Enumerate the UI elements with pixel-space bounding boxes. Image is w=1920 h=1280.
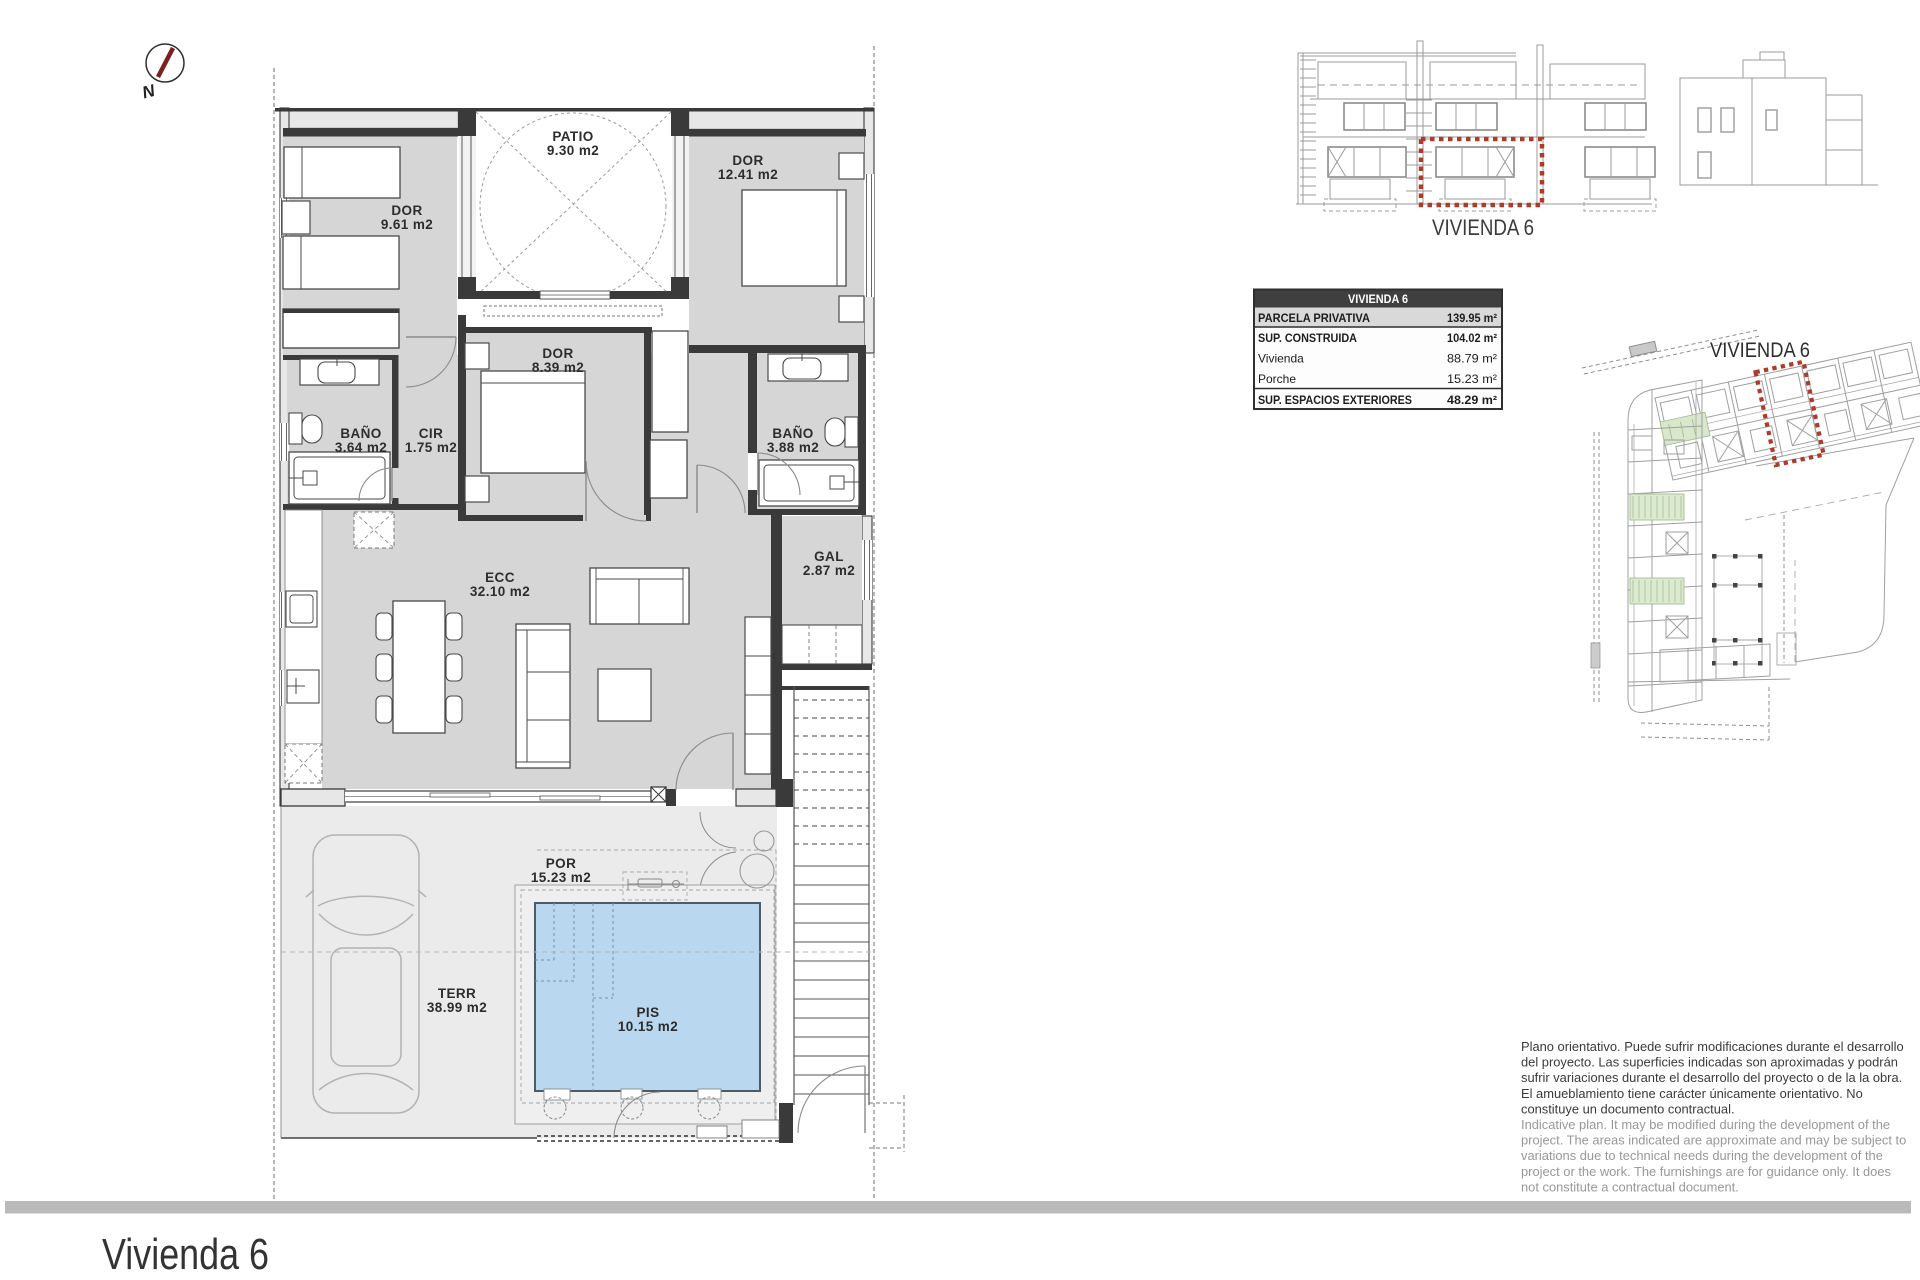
svg-text:ECC: ECC: [485, 570, 515, 585]
svg-text:9.61 m2: 9.61 m2: [381, 217, 433, 232]
svg-text:12.41 m2: 12.41 m2: [718, 167, 778, 182]
svg-text:El amueblamiento tiene carácte: El amueblamiento tiene carácter únicamen…: [1521, 1086, 1863, 1101]
svg-text:Porche: Porche: [1258, 372, 1296, 386]
svg-text:3.88 m2: 3.88 m2: [767, 440, 819, 455]
svg-text:3.64 m2: 3.64 m2: [335, 440, 387, 455]
svg-text:VIVIENDA 6: VIVIENDA 6: [1710, 339, 1810, 362]
svg-text:38.99 m2: 38.99 m2: [427, 1000, 487, 1015]
svg-text:VIVIENDA 6: VIVIENDA 6: [1432, 215, 1534, 240]
svg-text:constituye un documento contra: constituye un documento contractual.: [1521, 1101, 1735, 1116]
svg-text:2.87 m2: 2.87 m2: [803, 563, 855, 578]
svg-text:139.95 m²: 139.95 m²: [1447, 311, 1497, 325]
svg-text:PATIO: PATIO: [552, 129, 593, 144]
svg-text:10.15 m2: 10.15 m2: [618, 1019, 678, 1034]
svg-text:SUP. ESPACIOS EXTERIORES: SUP. ESPACIOS EXTERIORES: [1258, 393, 1412, 407]
svg-text:VIVIENDA 6: VIVIENDA 6: [1348, 292, 1408, 306]
svg-text:variations due to technical ne: variations due to technical needs during…: [1521, 1148, 1883, 1163]
svg-text:CIR: CIR: [419, 426, 443, 441]
svg-text:DOR: DOR: [542, 346, 573, 361]
svg-text:32.10 m2: 32.10 m2: [470, 584, 530, 599]
svg-text:TERR: TERR: [438, 986, 476, 1001]
svg-text:PIS: PIS: [637, 1005, 660, 1020]
svg-text:15.23 m2: 15.23 m2: [531, 870, 591, 885]
svg-text:Plano orientativo. Puede sufri: Plano orientativo. Puede sufrir modifica…: [1521, 1039, 1904, 1054]
svg-text:Indicative plan. It may be mod: Indicative plan. It may be modified duri…: [1521, 1117, 1890, 1132]
svg-text:104.02 m²: 104.02 m²: [1447, 331, 1497, 345]
svg-text:sufrir variaciones durante el: sufrir variaciones durante el desarrollo…: [1521, 1070, 1902, 1085]
svg-text:15.23 m²: 15.23 m²: [1447, 372, 1497, 386]
svg-text:DOR: DOR: [732, 153, 763, 168]
svg-text:PARCELA PRIVATIVA: PARCELA PRIVATIVA: [1258, 311, 1370, 325]
svg-text:BAÑO: BAÑO: [340, 426, 381, 441]
svg-text:1.75 m2: 1.75 m2: [405, 440, 457, 455]
svg-text:Vivienda 6: Vivienda 6: [102, 1230, 269, 1279]
svg-text:BAÑO: BAÑO: [772, 426, 813, 441]
svg-text:48.29 m²: 48.29 m²: [1447, 393, 1497, 407]
svg-text:9.30 m2: 9.30 m2: [547, 143, 599, 158]
svg-text:GAL: GAL: [814, 549, 844, 564]
svg-text:SUP. CONSTRUIDA: SUP. CONSTRUIDA: [1258, 331, 1357, 345]
svg-text:8.39 m2: 8.39 m2: [532, 360, 584, 375]
svg-text:Vivienda: Vivienda: [1258, 352, 1304, 366]
svg-text:project or the work. The furni: project or the work. The furnishings are…: [1521, 1164, 1891, 1179]
svg-text:not constitute a contractual d: not constitute a contractual document.: [1521, 1179, 1739, 1194]
svg-text:project. The areas indicated a: project. The areas indicated are approxi…: [1521, 1133, 1906, 1148]
svg-text:88.79 m²: 88.79 m²: [1447, 352, 1497, 366]
svg-text:DOR: DOR: [391, 203, 422, 218]
svg-text:POR: POR: [546, 856, 576, 871]
svg-text:del proyecto. Las superficies: del proyecto. Las superficies indicadas …: [1521, 1055, 1898, 1070]
